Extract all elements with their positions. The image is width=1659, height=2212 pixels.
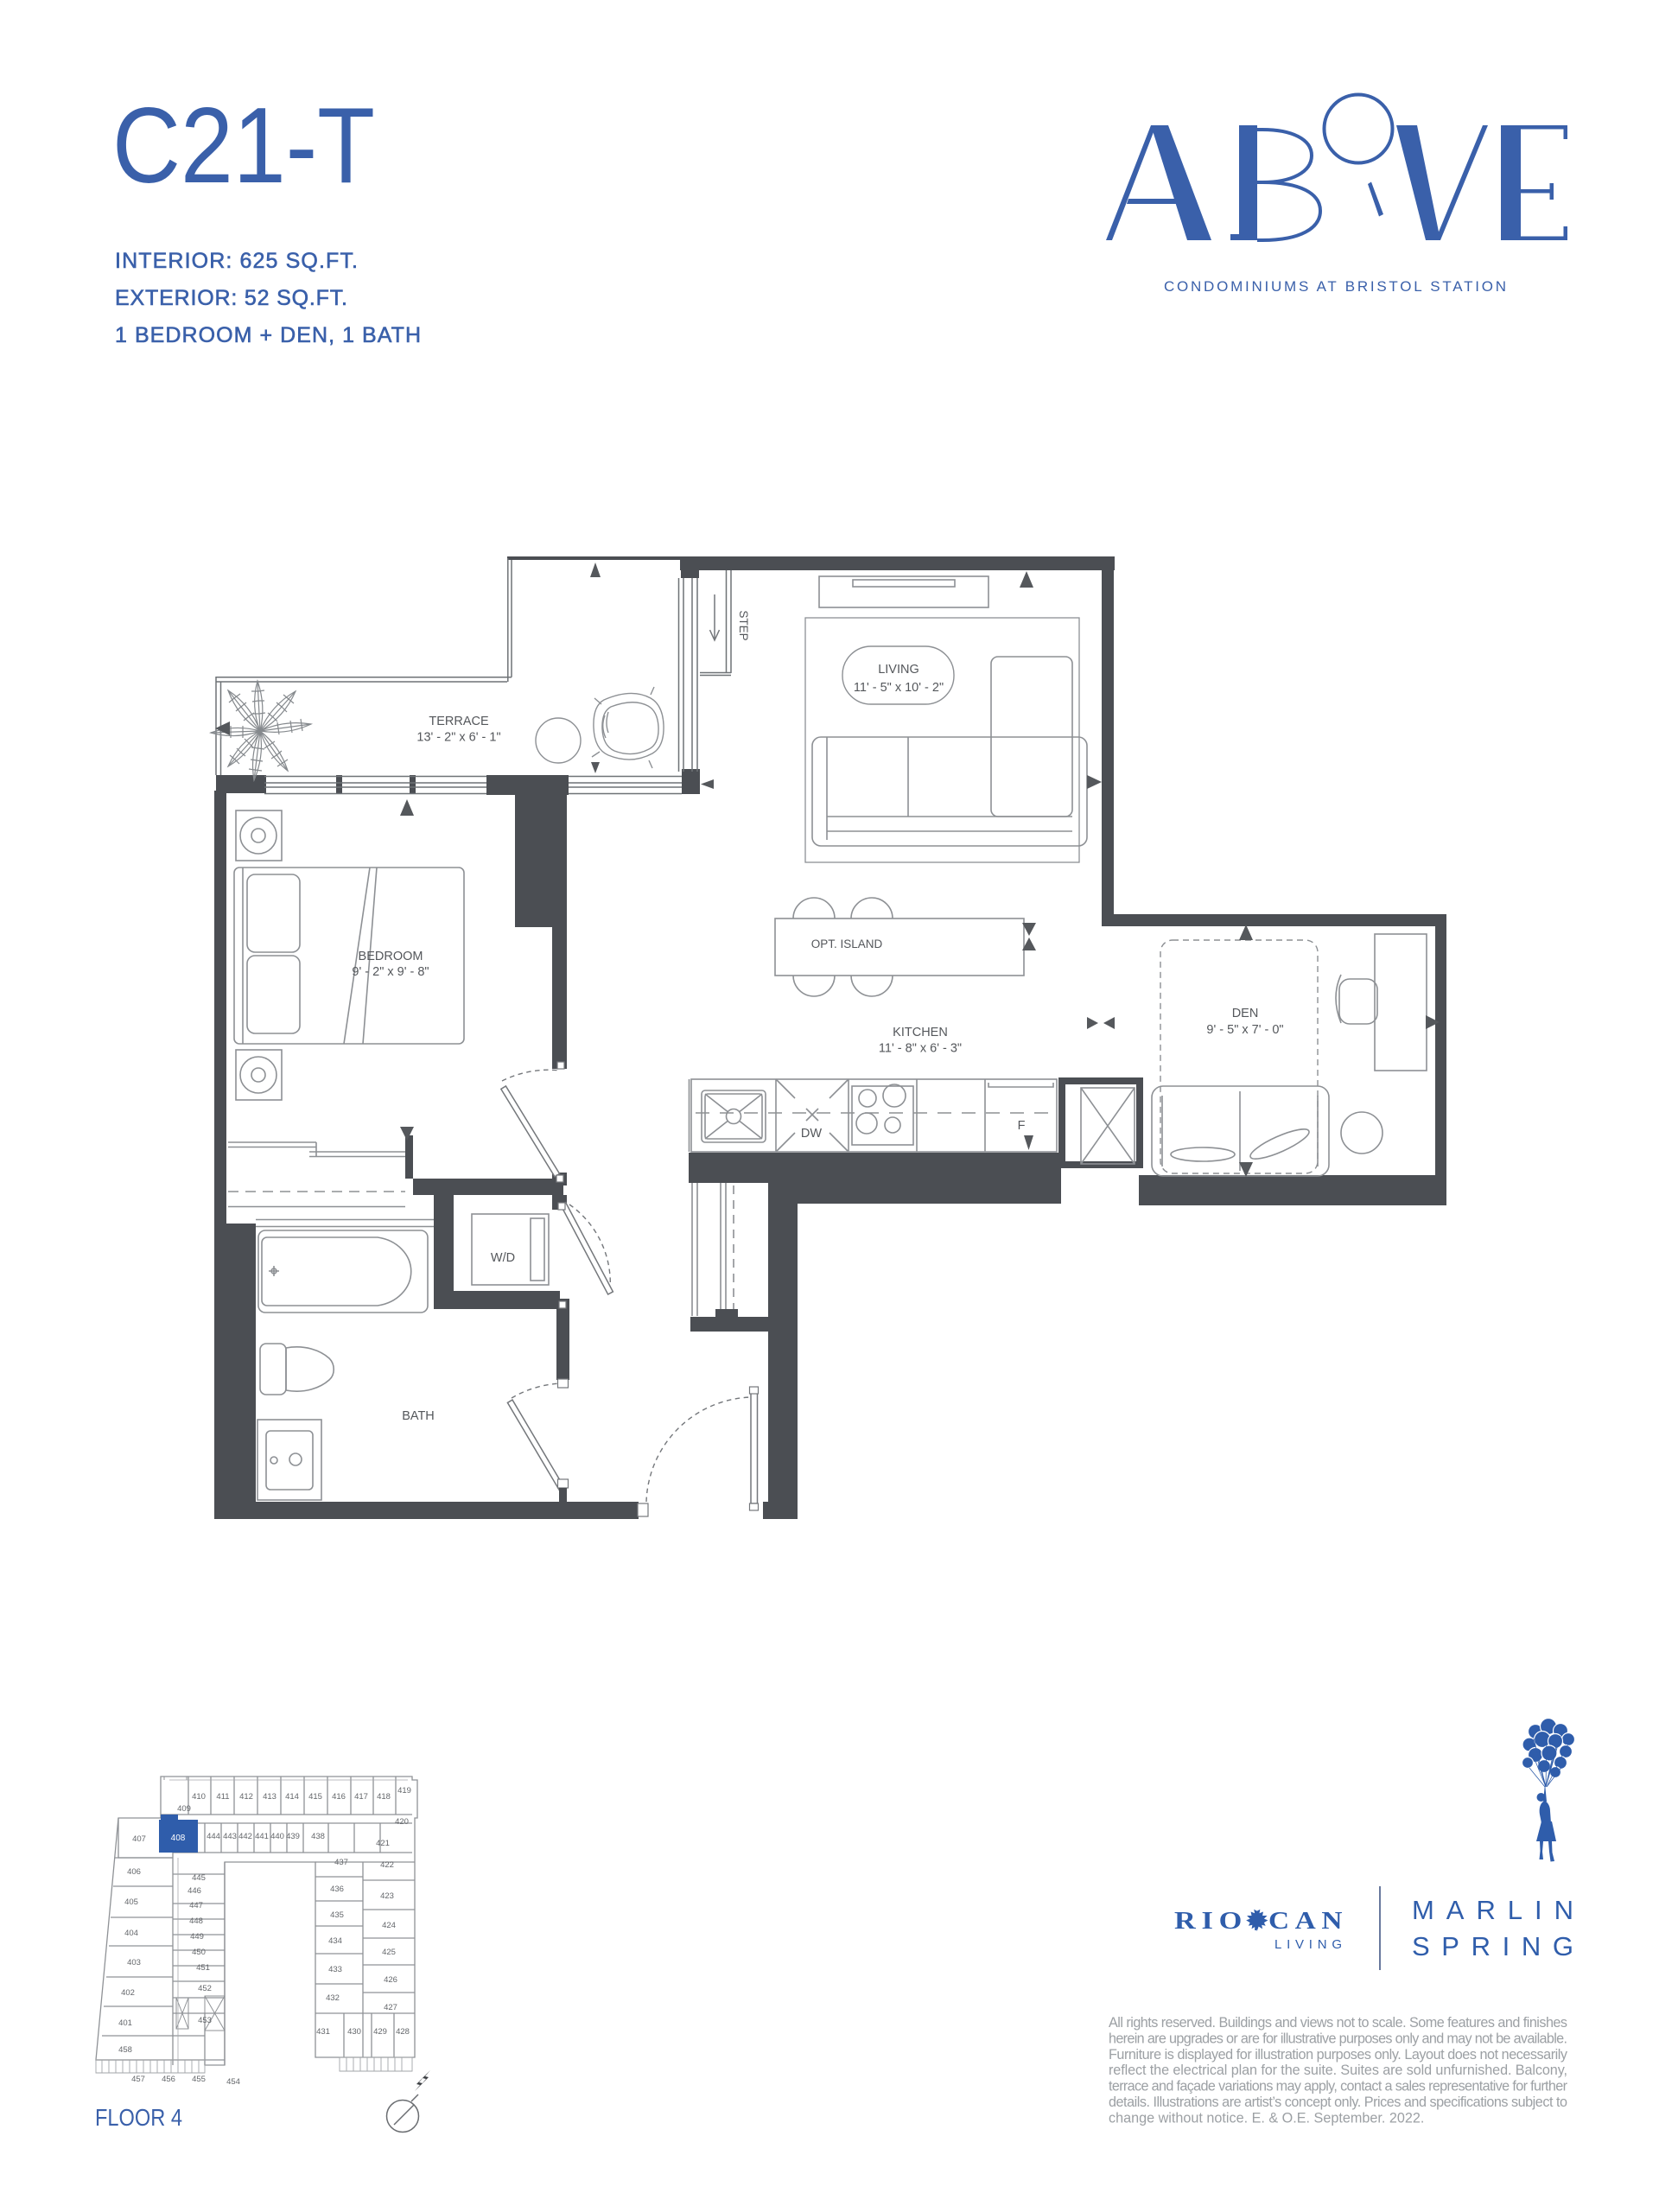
- svg-text:441: 441: [255, 1832, 269, 1841]
- svg-text:change without notice. E. & O.: change without notice. E. & O.E. Septemb…: [1109, 2110, 1424, 2126]
- svg-text:427: 427: [384, 2003, 397, 2012]
- svg-text:407: 407: [132, 1834, 146, 1844]
- svg-text:424: 424: [382, 1921, 396, 1930]
- svg-text:411: 411: [216, 1792, 229, 1802]
- svg-text:423: 423: [380, 1891, 394, 1901]
- svg-text:1 BEDROOM + DEN, 1 BATH: 1 BEDROOM + DEN, 1 BATH: [115, 323, 421, 347]
- svg-text:457: 457: [131, 2075, 145, 2084]
- svg-text:408: 408: [171, 1834, 186, 1843]
- svg-text:453: 453: [198, 2016, 212, 2025]
- svg-text:444: 444: [207, 1832, 220, 1841]
- svg-text:OPT. ISLAND: OPT. ISLAND: [811, 938, 883, 950]
- svg-text:454: 454: [226, 2077, 240, 2087]
- svg-text:447: 447: [189, 1901, 203, 1910]
- svg-text:451: 451: [196, 1963, 210, 1973]
- svg-text:414: 414: [285, 1792, 299, 1802]
- svg-text:433: 433: [328, 1965, 342, 1974]
- svg-text:431: 431: [316, 2027, 330, 2037]
- svg-text:437: 437: [334, 1858, 348, 1867]
- svg-text:terrace and façade variations: terrace and façade variations may apply,…: [1109, 2079, 1568, 2094]
- svg-text:404: 404: [124, 1929, 138, 1938]
- svg-text:All rights reserved. Buildings: All rights reserved. Buildings and views…: [1109, 2015, 1567, 2031]
- svg-text:448: 448: [189, 1916, 203, 1926]
- svg-text:458: 458: [118, 2045, 132, 2055]
- svg-text:410: 410: [192, 1792, 206, 1802]
- svg-text:Furniture is displayed for ill: Furniture is displayed for illustration …: [1109, 2047, 1568, 2063]
- svg-text:BATH: BATH: [402, 1409, 435, 1423]
- svg-text:456: 456: [162, 2075, 175, 2084]
- svg-text:440: 440: [270, 1832, 284, 1841]
- svg-text:KITCHEN: KITCHEN: [893, 1026, 948, 1039]
- svg-text:412: 412: [239, 1792, 253, 1802]
- svg-text:434: 434: [328, 1936, 342, 1946]
- svg-text:415: 415: [308, 1792, 322, 1802]
- svg-text:herein are upgrades or are for: herein are upgrades or are for illustrat…: [1109, 2031, 1567, 2046]
- svg-text:13' - 2" x 6' - 1": 13' - 2" x 6' - 1": [416, 731, 500, 745]
- svg-text:LIVING: LIVING: [878, 663, 919, 677]
- svg-text:438: 438: [311, 1832, 325, 1841]
- svg-text:417: 417: [354, 1792, 368, 1802]
- svg-text:RIO: RIO: [1174, 1908, 1248, 1935]
- svg-text:11' - 5" x 10' - 2": 11' - 5" x 10' - 2": [854, 681, 944, 695]
- svg-text:DEN: DEN: [1232, 1007, 1259, 1020]
- svg-text:421: 421: [376, 1839, 390, 1848]
- svg-text:435: 435: [330, 1910, 344, 1920]
- svg-text:F: F: [1018, 1119, 1026, 1133]
- svg-text:details. Illustrations are art: details. Illustrations are artist’s conc…: [1109, 2094, 1567, 2110]
- svg-text:405: 405: [124, 1897, 138, 1907]
- svg-text:422: 422: [380, 1860, 394, 1870]
- svg-text:413: 413: [263, 1792, 276, 1802]
- svg-text:420: 420: [395, 1817, 409, 1827]
- svg-text:426: 426: [384, 1975, 397, 1985]
- svg-text:428: 428: [396, 2027, 410, 2037]
- svg-text:401: 401: [118, 2018, 132, 2028]
- svg-text:STEP: STEP: [737, 610, 750, 640]
- svg-text:9' - 5" x 7' - 0": 9' - 5" x 7' - 0": [1206, 1023, 1283, 1037]
- svg-text:439: 439: [286, 1832, 300, 1841]
- svg-text:DW: DW: [801, 1127, 822, 1141]
- svg-text:416: 416: [332, 1792, 346, 1802]
- svg-text:SPRING: SPRING: [1412, 1931, 1581, 1961]
- svg-text:409: 409: [177, 1804, 191, 1814]
- svg-text:455: 455: [192, 2075, 206, 2084]
- svg-text:403: 403: [127, 1958, 141, 1967]
- svg-text:EXTERIOR: 52 SQ.FT.: EXTERIOR: 52 SQ.FT.: [115, 286, 347, 310]
- svg-text:429: 429: [373, 2027, 387, 2037]
- svg-text:402: 402: [121, 1988, 135, 1998]
- svg-text:11' - 8" x 6' - 3": 11' - 8" x 6' - 3": [879, 1042, 962, 1056]
- svg-text:418: 418: [377, 1792, 391, 1802]
- svg-text:430: 430: [347, 2027, 361, 2037]
- svg-text:C21-T: C21-T: [112, 86, 375, 206]
- svg-text:W/D: W/D: [491, 1251, 515, 1265]
- svg-text:449: 449: [190, 1932, 204, 1942]
- svg-text:FLOOR 4: FLOOR 4: [95, 2104, 182, 2131]
- svg-text:419: 419: [397, 1786, 411, 1796]
- svg-text:443: 443: [223, 1832, 237, 1841]
- svg-text:CONDOMINIUMS AT BRISTOL STATIO: CONDOMINIUMS AT BRISTOL STATION: [1164, 278, 1510, 295]
- svg-text:442: 442: [238, 1832, 252, 1841]
- svg-text:450: 450: [192, 1948, 206, 1957]
- svg-text:TERRACE: TERRACE: [429, 715, 489, 728]
- svg-text:CAN: CAN: [1268, 1908, 1348, 1935]
- svg-text:reflect the electrical plan fo: reflect the electrical plan for the suit…: [1109, 2063, 1567, 2078]
- svg-text:452: 452: [198, 1984, 212, 1993]
- svg-text:445: 445: [192, 1873, 206, 1883]
- svg-text:432: 432: [326, 1993, 340, 2003]
- svg-text:9' - 2" x 9' - 8": 9' - 2" x 9' - 8": [352, 965, 429, 979]
- svg-text:446: 446: [188, 1886, 201, 1896]
- svg-text:436: 436: [330, 1885, 344, 1894]
- svg-text:425: 425: [382, 1948, 396, 1957]
- svg-text:BEDROOM: BEDROOM: [359, 950, 423, 963]
- svg-text:406: 406: [127, 1867, 141, 1877]
- svg-text:MARLIN: MARLIN: [1412, 1895, 1581, 1925]
- svg-text:INTERIOR: 625 SQ.FT.: INTERIOR: 625 SQ.FT.: [115, 249, 358, 273]
- svg-text:LIVING: LIVING: [1274, 1937, 1348, 1952]
